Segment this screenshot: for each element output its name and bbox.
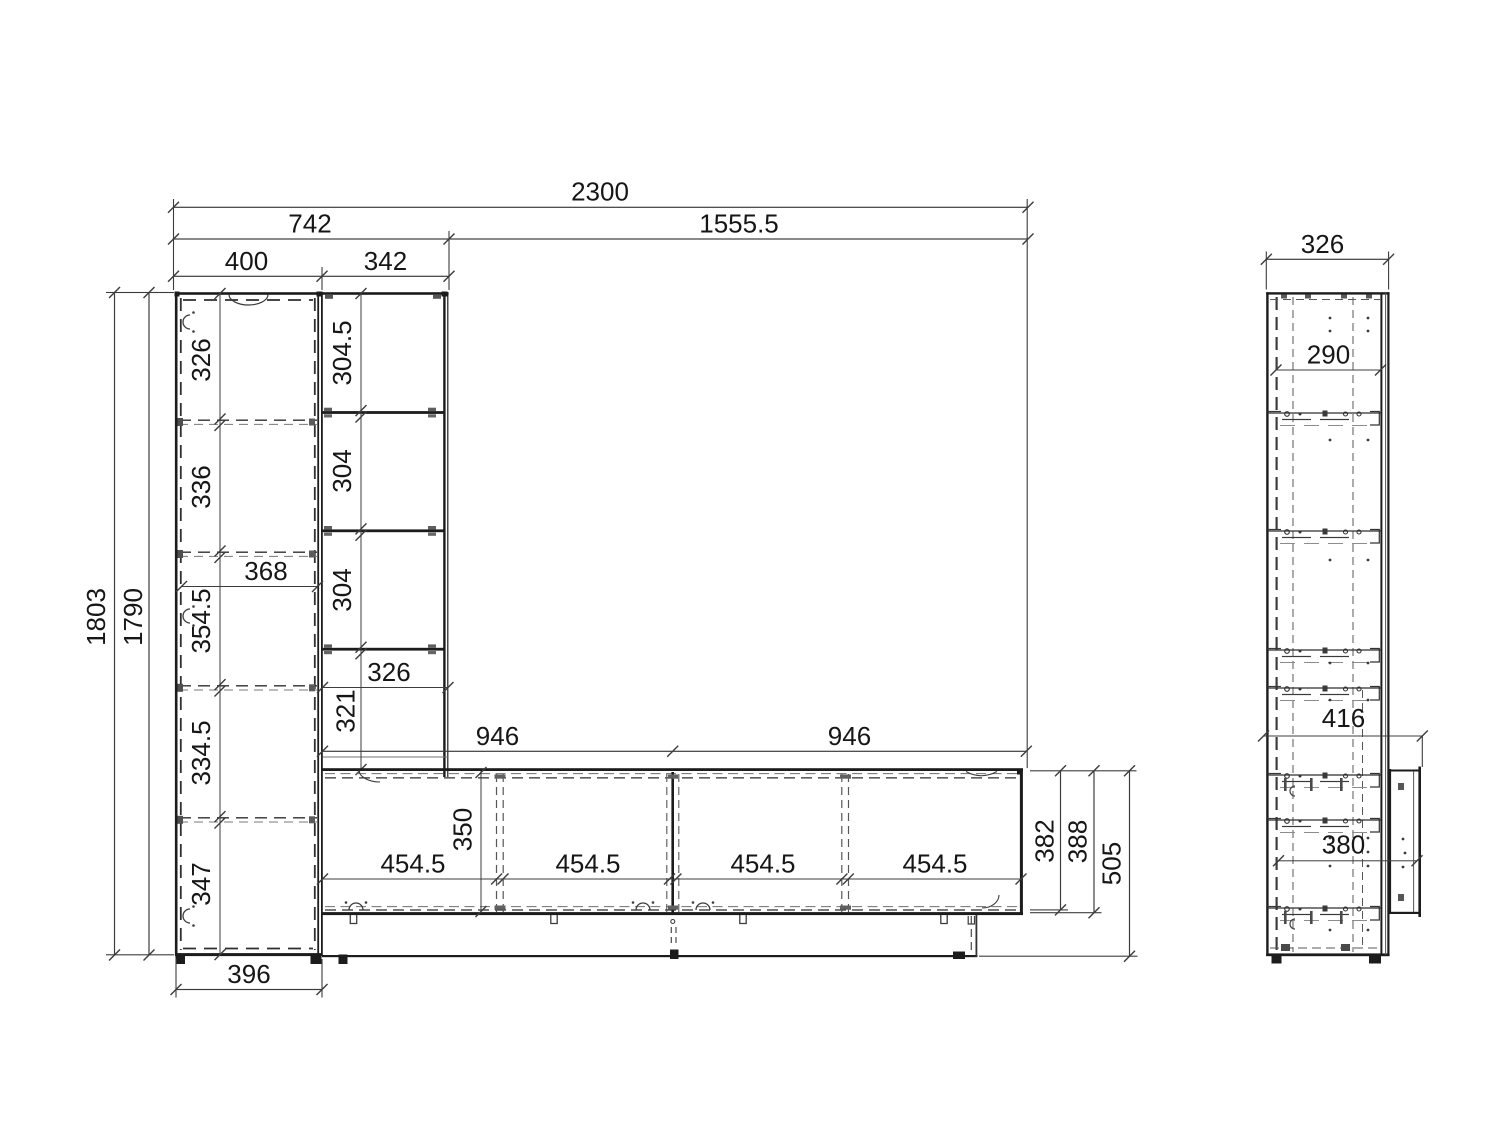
svg-text:1803: 1803 <box>81 588 111 646</box>
svg-text:396: 396 <box>227 959 270 989</box>
svg-text:304: 304 <box>327 449 357 492</box>
svg-text:505: 505 <box>1097 842 1127 885</box>
svg-text:326: 326 <box>186 338 216 381</box>
svg-text:321: 321 <box>331 689 361 732</box>
svg-text:454.5: 454.5 <box>730 849 795 879</box>
svg-text:946: 946 <box>828 721 871 751</box>
svg-text:304: 304 <box>327 568 357 611</box>
svg-text:336: 336 <box>186 465 216 508</box>
svg-text:380: 380 <box>1322 830 1365 860</box>
svg-text:326: 326 <box>367 657 410 687</box>
svg-text:454.5: 454.5 <box>380 849 445 879</box>
svg-text:334.5: 334.5 <box>186 720 216 785</box>
svg-text:326: 326 <box>1301 229 1344 259</box>
svg-text:342: 342 <box>364 246 407 276</box>
svg-text:400: 400 <box>225 246 268 276</box>
svg-text:946: 946 <box>476 721 519 751</box>
svg-text:304.5: 304.5 <box>327 320 357 385</box>
svg-text:382: 382 <box>1030 819 1060 862</box>
svg-text:350: 350 <box>448 808 478 851</box>
svg-text:454.5: 454.5 <box>555 849 620 879</box>
svg-text:1555.5: 1555.5 <box>699 209 779 239</box>
svg-text:388: 388 <box>1063 820 1093 863</box>
svg-text:290: 290 <box>1307 340 1350 370</box>
svg-text:742: 742 <box>288 209 331 239</box>
svg-text:454.5: 454.5 <box>902 849 967 879</box>
svg-text:354.5: 354.5 <box>186 588 216 653</box>
svg-text:2300: 2300 <box>571 177 629 207</box>
svg-text:347: 347 <box>186 862 216 905</box>
svg-text:368: 368 <box>244 556 287 586</box>
svg-text:416: 416 <box>1322 703 1365 733</box>
svg-text:1790: 1790 <box>118 588 148 646</box>
